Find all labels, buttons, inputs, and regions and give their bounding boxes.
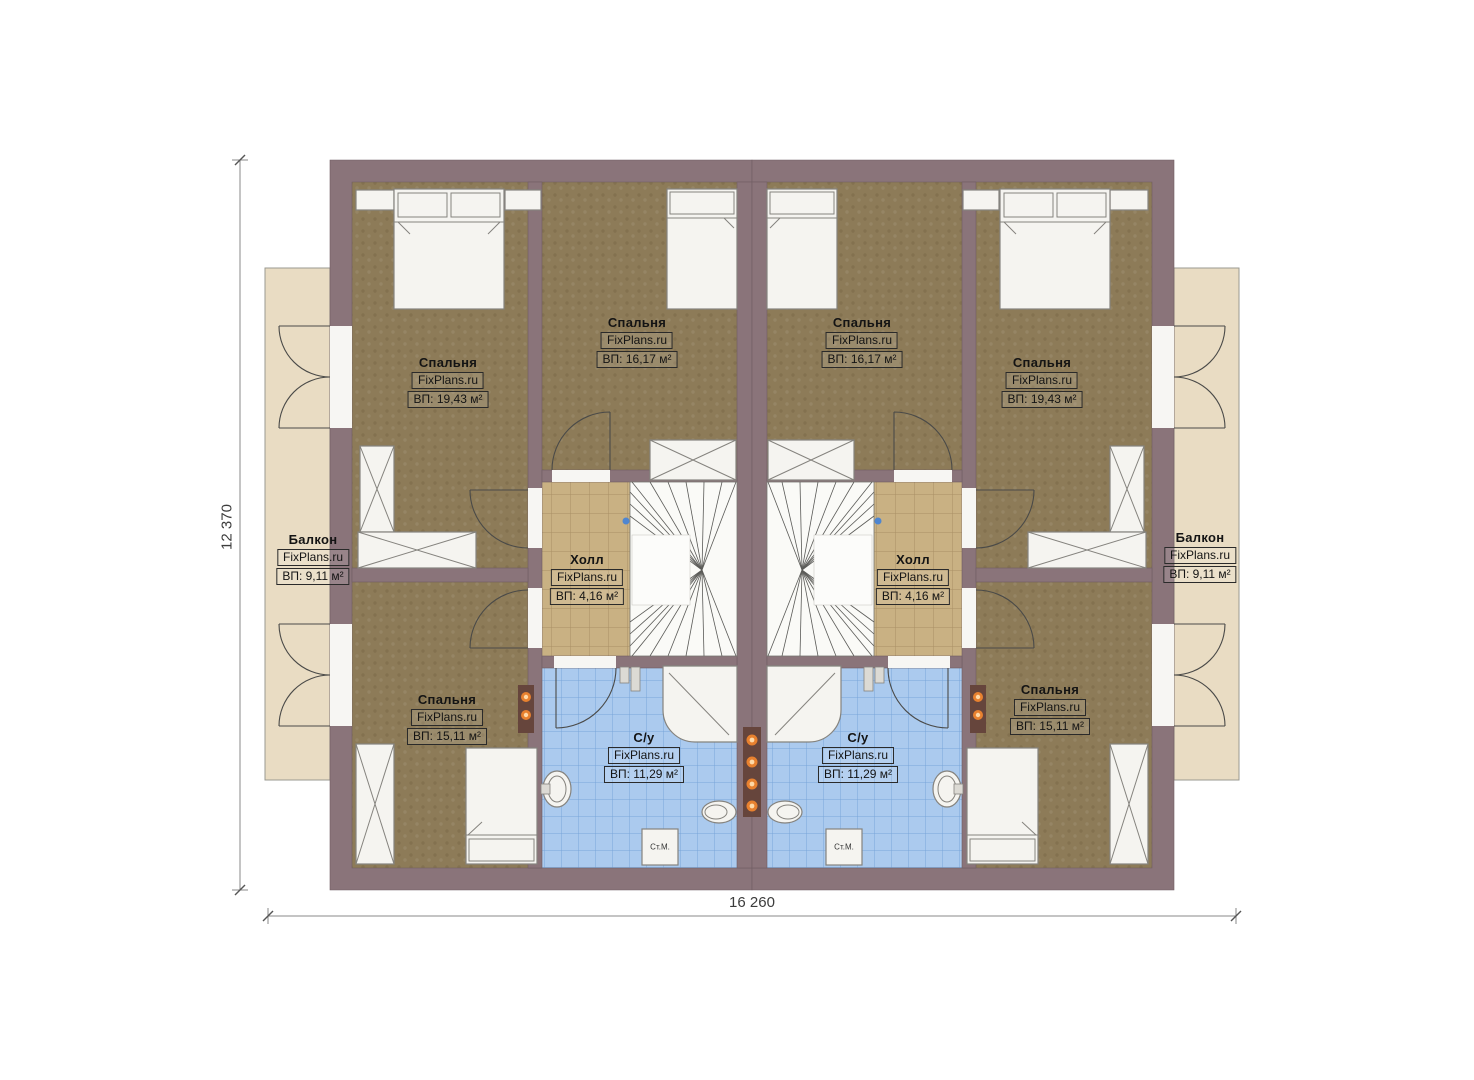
shower-valve	[620, 667, 629, 683]
watermark: FixPlans.ru	[1006, 372, 1078, 389]
wardrobe	[650, 440, 736, 480]
room-name: Холл	[550, 552, 624, 567]
nightstand	[356, 190, 394, 210]
room-area: ВП: 11,29 м²	[818, 766, 898, 783]
double-bed	[394, 189, 504, 309]
floor-plan-canvas: Балкон FixPlans.ru ВП: 9,11 м² Спальня F…	[0, 0, 1474, 1080]
watermark: FixPlans.ru	[826, 332, 898, 349]
watermark: FixPlans.ru	[551, 569, 623, 586]
room-area: ВП: 16,17 м²	[822, 351, 903, 368]
room-name: Балкон	[1163, 530, 1236, 545]
room-name: Холл	[876, 552, 950, 567]
wardrobe	[360, 446, 394, 532]
room-name: Спальня	[822, 315, 903, 330]
room-label-bath-left: С/у FixPlans.ru ВП: 11,29 м²	[604, 730, 684, 783]
washing-machine-label: Ст.М.	[834, 843, 854, 852]
room-name: Спальня	[1010, 682, 1090, 697]
stairs-left	[623, 482, 738, 656]
room-area: ВП: 4,16 м²	[876, 588, 950, 605]
watermark: FixPlans.ru	[1014, 699, 1086, 716]
watermark: FixPlans.ru	[822, 747, 894, 764]
single-bed	[466, 748, 537, 864]
room-name: Спальня	[408, 355, 489, 370]
single-bed	[667, 189, 737, 309]
room-label-bedroom-left-inner: Спальня FixPlans.ru ВП: 16,17 м²	[597, 315, 678, 368]
room-label-bedroom-right-top: Спальня FixPlans.ru ВП: 19,43 м²	[1002, 355, 1083, 408]
dimension-height: 12 370	[219, 504, 236, 550]
nightstand	[505, 190, 541, 210]
room-area: ВП: 15,11 м²	[407, 728, 487, 745]
room-name: Спальня	[1002, 355, 1083, 370]
room-label-balcony-left: Балкон FixPlans.ru ВП: 9,11 м²	[276, 532, 349, 585]
wardrobe	[358, 532, 476, 568]
towel-radiator	[518, 685, 534, 733]
room-area: ВП: 15,11 м²	[1010, 718, 1090, 735]
room-area: ВП: 19,43 м²	[1002, 391, 1083, 408]
room-area: ВП: 19,43 м²	[408, 391, 489, 408]
toilet	[702, 801, 736, 823]
washing-machine-label: Ст.М.	[650, 843, 670, 852]
room-area: ВП: 11,29 м²	[604, 766, 684, 783]
room-label-bedroom-left-bottom: Спальня FixPlans.ru ВП: 15,11 м²	[407, 692, 487, 745]
room-label-hall-right: Холл FixPlans.ru ВП: 4,16 м²	[876, 552, 950, 605]
watermark: FixPlans.ru	[608, 747, 680, 764]
room-name: С/у	[818, 730, 898, 745]
party-wall-radiator	[743, 727, 761, 817]
room-label-bedroom-right-bottom: Спальня FixPlans.ru ВП: 15,11 м²	[1010, 682, 1090, 735]
watermark: FixPlans.ru	[1164, 547, 1236, 564]
room-area: ВП: 9,11 м²	[276, 568, 349, 585]
room-area: ВП: 9,11 м²	[1163, 566, 1236, 583]
room-area: ВП: 16,17 м²	[597, 351, 678, 368]
room-label-balcony-right: Балкон FixPlans.ru ВП: 9,11 м²	[1163, 530, 1236, 583]
room-label-bedroom-right-inner: Спальня FixPlans.ru ВП: 16,17 м²	[822, 315, 903, 368]
room-label-hall-left: Холл FixPlans.ru ВП: 4,16 м²	[550, 552, 624, 605]
watermark: FixPlans.ru	[877, 569, 949, 586]
room-name: Спальня	[407, 692, 487, 707]
dimension-width: 16 260	[729, 894, 775, 911]
watermark: FixPlans.ru	[601, 332, 673, 349]
room-label-bedroom-left-top: Спальня FixPlans.ru ВП: 19,43 м²	[408, 355, 489, 408]
room-name: С/у	[604, 730, 684, 745]
room-label-bath-right: С/у FixPlans.ru ВП: 11,29 м²	[818, 730, 898, 783]
watermark: FixPlans.ru	[411, 709, 483, 726]
room-name: Спальня	[597, 315, 678, 330]
wardrobe	[356, 744, 394, 864]
shower-valve	[631, 667, 640, 691]
room-name: Балкон	[276, 532, 349, 547]
watermark: FixPlans.ru	[412, 372, 484, 389]
watermark: FixPlans.ru	[277, 549, 349, 566]
room-area: ВП: 4,16 м²	[550, 588, 624, 605]
balcony-left	[265, 268, 330, 780]
